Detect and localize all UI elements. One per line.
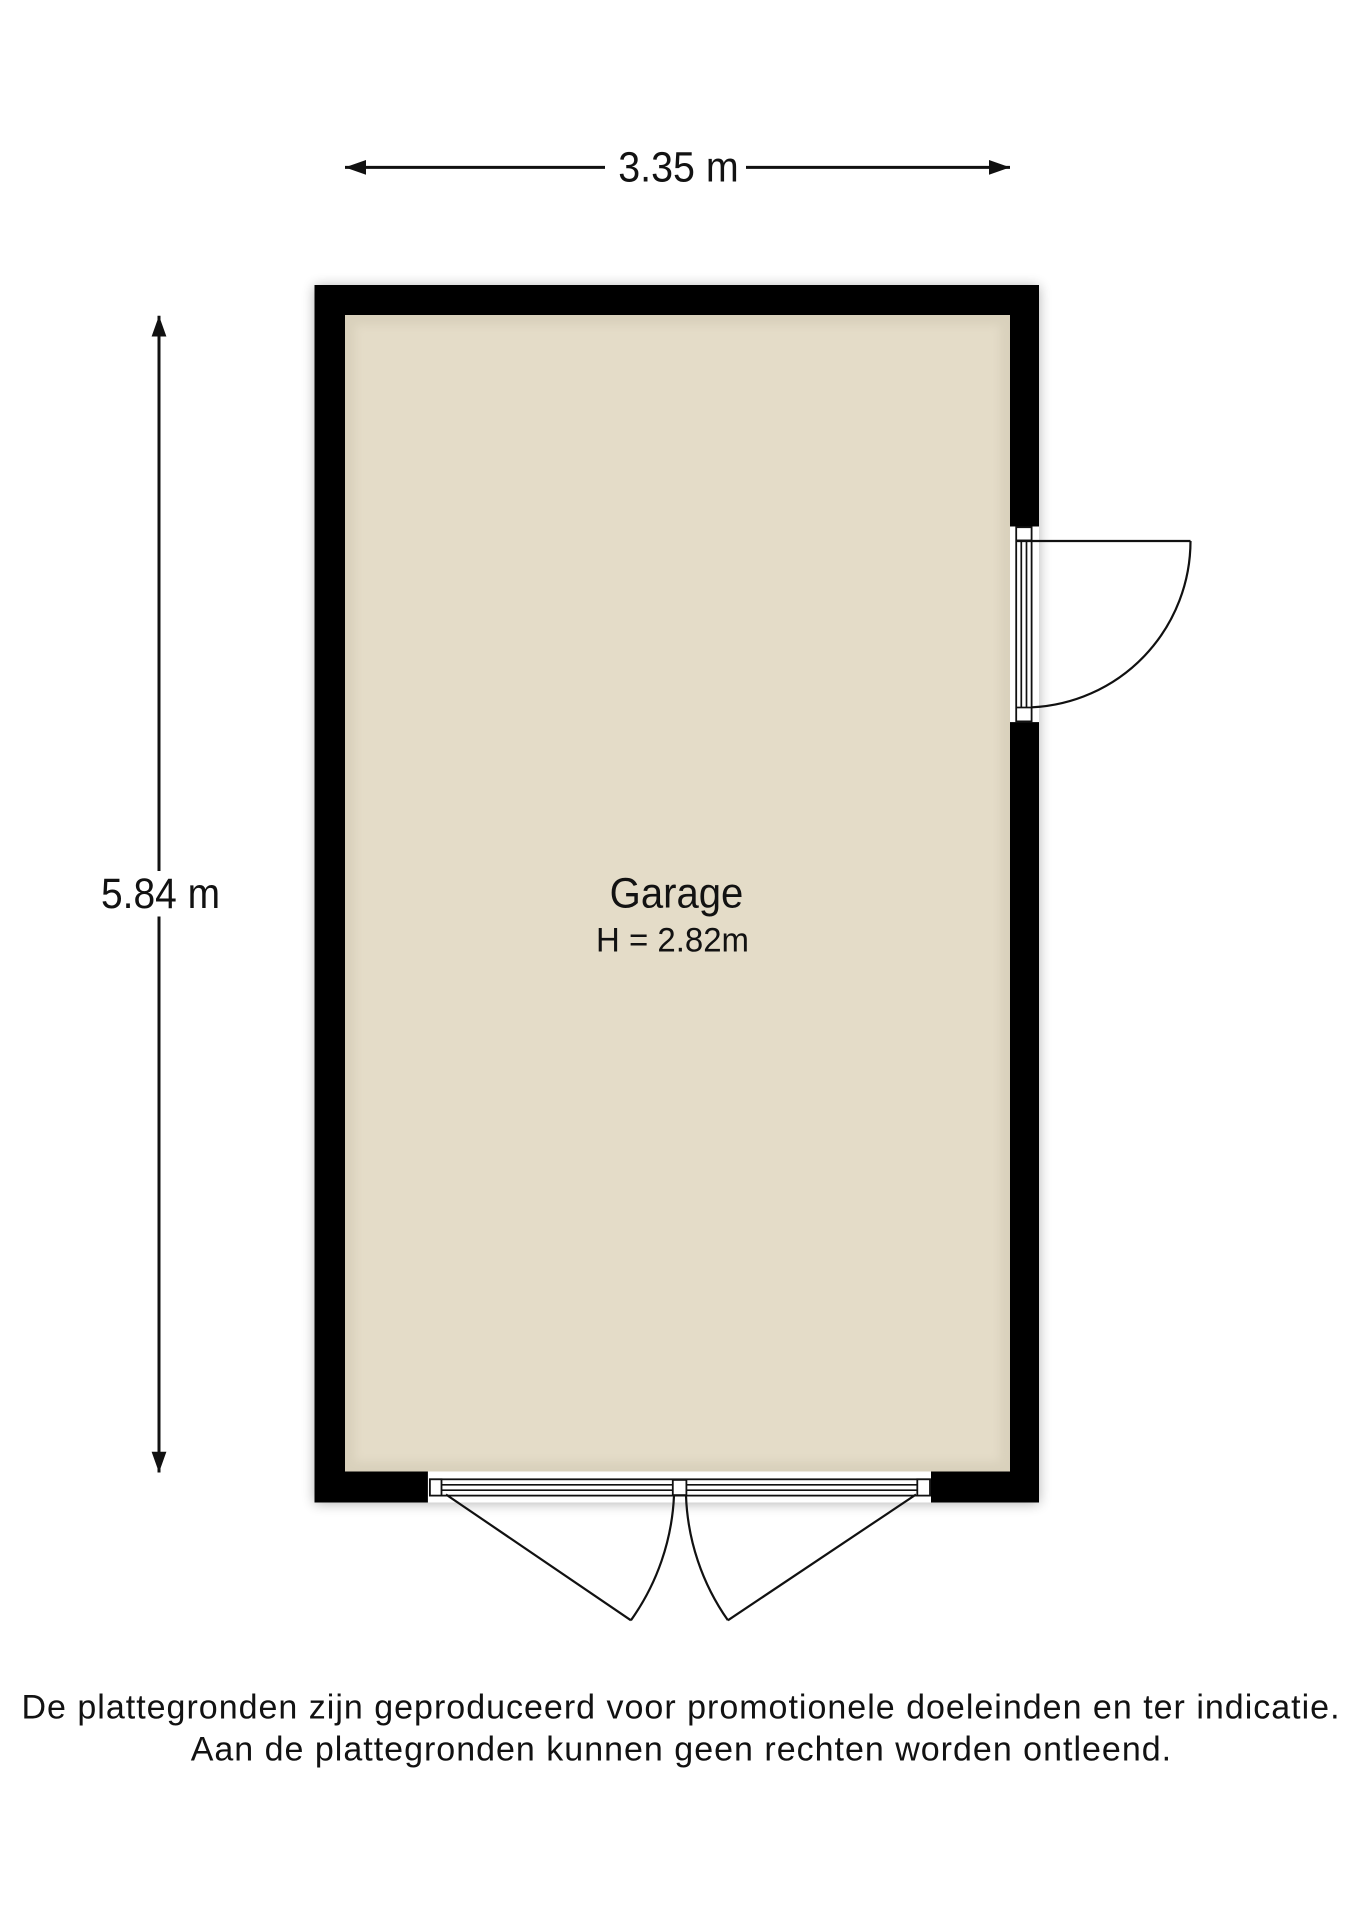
svg-text:Garage: Garage [610, 870, 744, 918]
svg-text:H = 2.82m: H = 2.82m [596, 921, 749, 959]
svg-text:De plattegronden zijn geproduc: De plattegronden zijn geproduceerd voor … [21, 1688, 1340, 1726]
svg-text:5.84 m: 5.84 m [101, 870, 220, 918]
svg-text:Aan de plattegronden kunnen ge: Aan de plattegronden kunnen geen rechten… [191, 1731, 1172, 1769]
svg-text:3.35 m: 3.35 m [618, 143, 739, 191]
